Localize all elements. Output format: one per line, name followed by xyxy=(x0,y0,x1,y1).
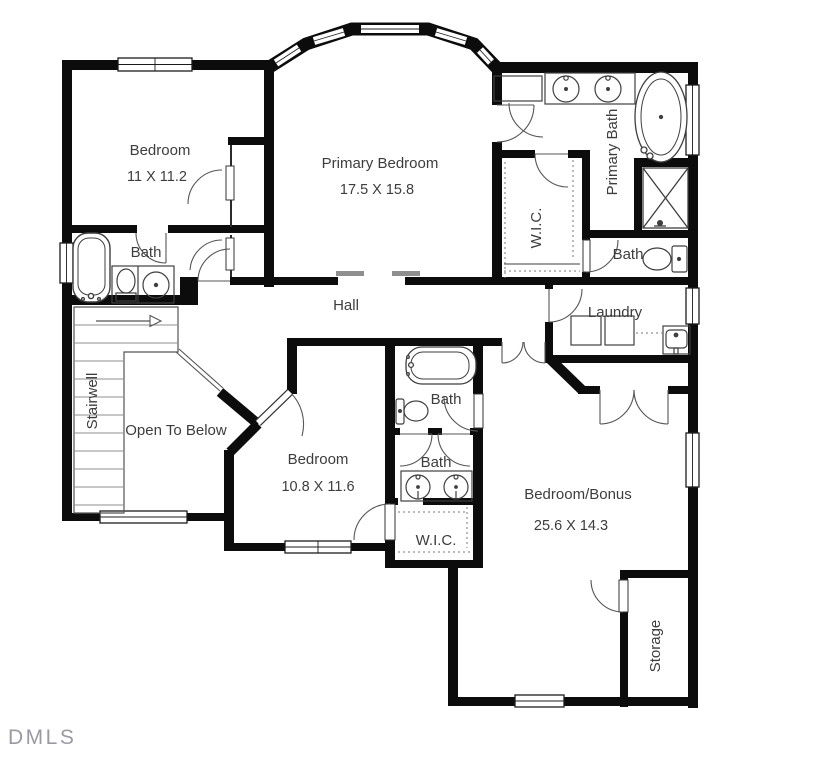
bath-toilet-room-label: Bath xyxy=(613,246,644,263)
freestanding-tub xyxy=(635,72,687,162)
mid-vanity xyxy=(401,471,472,501)
opening-ticks xyxy=(336,271,420,276)
stairwell-label: Stairwell xyxy=(84,373,101,430)
bath-mid-tub-label: Bath xyxy=(431,391,462,408)
primary-bedroom-label: Primary Bedroom xyxy=(322,155,439,172)
mid-toilet xyxy=(396,399,428,424)
bedroom1-label: Bedroom xyxy=(130,142,191,159)
bedroom2-dims: 10.8 X 11.6 xyxy=(281,479,354,495)
bathtub xyxy=(73,233,110,302)
storage-label: Storage xyxy=(647,620,664,673)
primary-bath-label: Primary Bath xyxy=(604,109,621,196)
mid-bathtub xyxy=(406,347,476,384)
wic-mid-label: W.I.C. xyxy=(416,532,457,549)
shower xyxy=(643,168,688,228)
bath-mid-sink-label: Bath xyxy=(421,454,452,471)
open-below-railing xyxy=(124,349,223,391)
bedroom2-label: Bedroom xyxy=(288,451,349,468)
bonus-dims: 25.6 X 14.3 xyxy=(534,518,608,534)
wic-primary-label: W.I.C. xyxy=(528,208,545,249)
primary-bedroom-dims: 17.5 X 15.8 xyxy=(340,182,414,198)
primary-vanity xyxy=(545,73,635,104)
open-to-below-label: Open To Below xyxy=(125,422,227,439)
bay-window xyxy=(268,29,497,68)
floor-plan-page: Bedroom 11 X 11.2 Primary Bedroom 17.5 X… xyxy=(0,0,840,773)
toilet-room-toilet xyxy=(643,246,687,272)
floor-plan: Bedroom 11 X 11.2 Primary Bedroom 17.5 X… xyxy=(0,0,840,773)
utility-sink xyxy=(663,326,690,354)
bath-top-left-label: Bath xyxy=(131,244,162,261)
angled-door-leaf xyxy=(258,392,290,423)
bonus-label: Bedroom/Bonus xyxy=(524,486,632,503)
laundry-label: Laundry xyxy=(588,304,643,321)
hall-label: Hall xyxy=(333,297,359,314)
watermark-logo: DMLS xyxy=(8,726,76,749)
bedroom1-dims: 11 X 11.2 xyxy=(127,169,187,185)
